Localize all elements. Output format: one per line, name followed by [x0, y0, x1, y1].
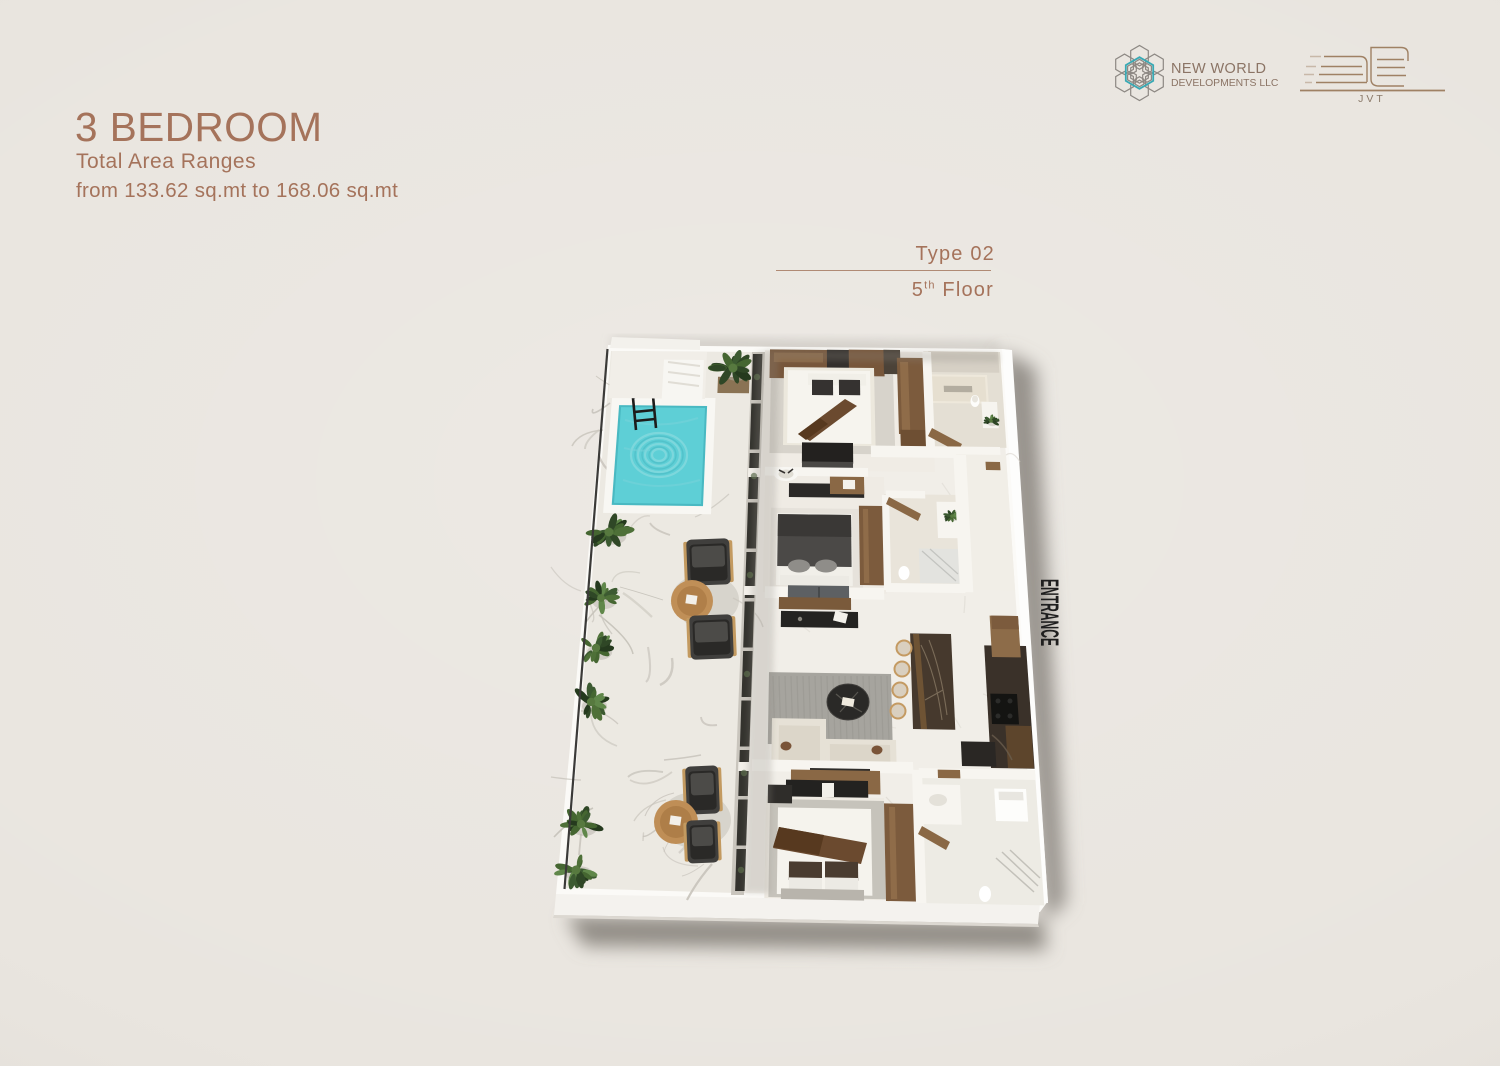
svg-text:NEW WORLD: NEW WORLD	[1171, 61, 1266, 77]
svg-text:JVT: JVT	[1358, 93, 1386, 105]
svg-text:ENTRANCE: ENTRANCE	[1035, 579, 1063, 646]
svg-text:DEVELOPMENTS LLC: DEVELOPMENTS LLC	[1171, 78, 1279, 89]
